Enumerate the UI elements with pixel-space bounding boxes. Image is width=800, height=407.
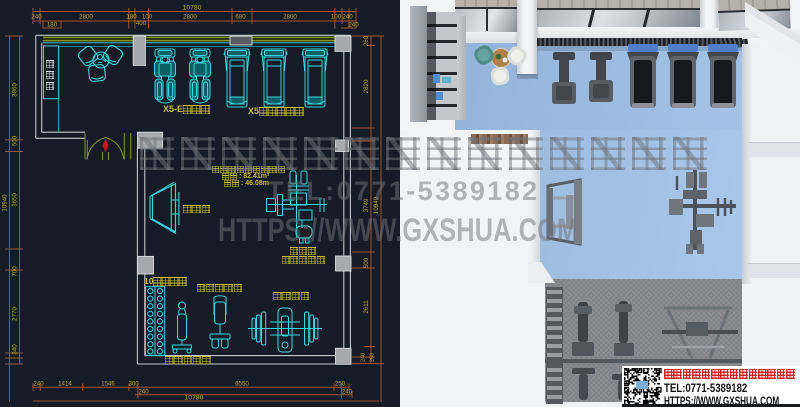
svg-text:240: 240 (342, 14, 353, 21)
svg-text:2820: 2820 (363, 79, 370, 93)
svg-text:3650: 3650 (12, 193, 19, 207)
svg-text:3860: 3860 (12, 83, 19, 97)
svg-text:10780: 10780 (183, 5, 202, 12)
svg-text:2611: 2611 (363, 300, 370, 314)
svg-text:260: 260 (370, 353, 376, 362)
svg-text:10780: 10780 (185, 395, 204, 402)
svg-text:250: 250 (335, 380, 346, 387)
svg-text:300: 300 (128, 380, 139, 387)
svg-text:240: 240 (348, 22, 359, 29)
svg-text:400: 400 (136, 20, 147, 27)
svg-text:100: 100 (331, 14, 342, 21)
svg-text:260: 260 (363, 35, 370, 46)
svg-text:680: 680 (235, 14, 246, 21)
svg-text:1414: 1414 (58, 380, 72, 387)
svg-text:2800: 2800 (283, 14, 297, 21)
svg-text:1546: 1546 (101, 380, 115, 387)
svg-text:240: 240 (361, 353, 367, 362)
svg-text:240: 240 (31, 14, 42, 21)
svg-text:500: 500 (363, 257, 370, 268)
svg-text:500: 500 (12, 135, 19, 146)
svg-text:2770: 2770 (12, 307, 19, 321)
svg-text:2800: 2800 (183, 14, 197, 21)
svg-text:700: 700 (12, 266, 19, 277)
svg-text:240: 240 (342, 388, 353, 395)
svg-text:340: 340 (12, 344, 19, 355)
svg-text:180: 180 (47, 22, 58, 29)
svg-text:2800: 2800 (79, 14, 93, 21)
svg-text:6550: 6550 (235, 380, 249, 387)
svg-text:240: 240 (33, 380, 44, 387)
svg-text:240: 240 (138, 388, 149, 395)
svg-text:10940: 10940 (2, 194, 9, 212)
